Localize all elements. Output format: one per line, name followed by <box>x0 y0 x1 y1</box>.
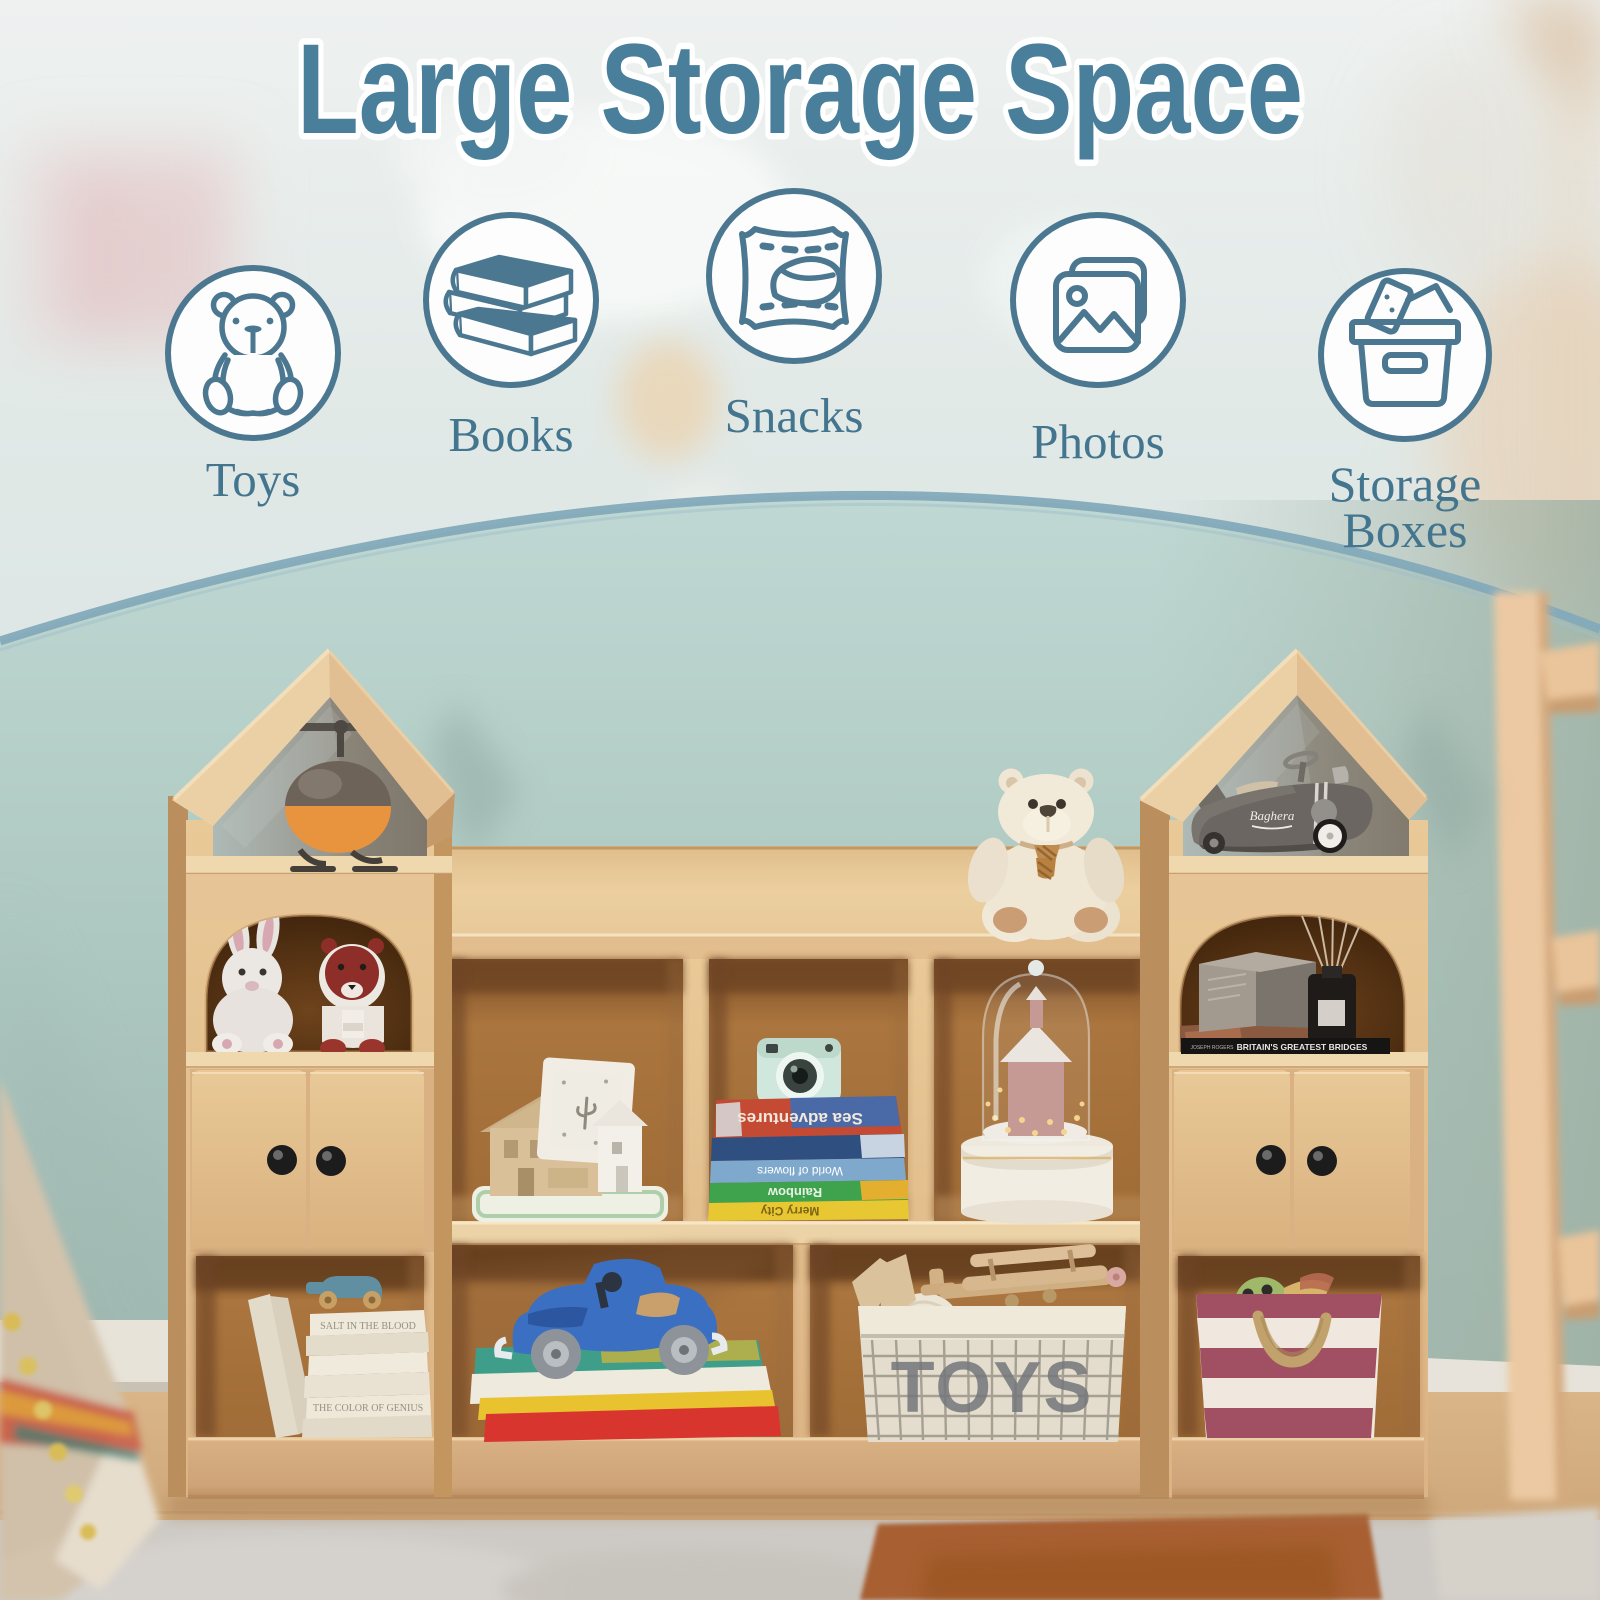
svg-text:Toys: Toys <box>206 452 301 507</box>
svg-text:World of flowers: World of flowers <box>757 1164 843 1178</box>
svg-text:Rainbow: Rainbow <box>767 1185 822 1200</box>
svg-text:Books: Books <box>448 407 573 462</box>
svg-text:Sea adventures: Sea adventures <box>737 1109 863 1128</box>
svg-text:SALT IN THE BLOOD: SALT IN THE BLOOD <box>320 1321 416 1332</box>
svg-text:Large Storage Space: Large Storage Space <box>297 18 1303 161</box>
svg-text:Photos: Photos <box>1031 414 1164 469</box>
svg-text:THE COLOR OF GENIUS: THE COLOR OF GENIUS <box>313 1403 423 1414</box>
svg-text:Baghera: Baghera <box>1250 808 1295 823</box>
svg-text:BRITAIN'S GREATEST BRIDGES: BRITAIN'S GREATEST BRIDGES <box>1237 1042 1368 1052</box>
svg-text:JOSEPH ROGERS: JOSEPH ROGERS <box>1190 1045 1234 1051</box>
svg-text:Merry City: Merry City <box>760 1204 819 1218</box>
svg-text:Snacks: Snacks <box>725 388 864 443</box>
svg-text:Boxes: Boxes <box>1343 502 1468 558</box>
svg-text:TOYS: TOYS <box>891 1348 1094 1428</box>
